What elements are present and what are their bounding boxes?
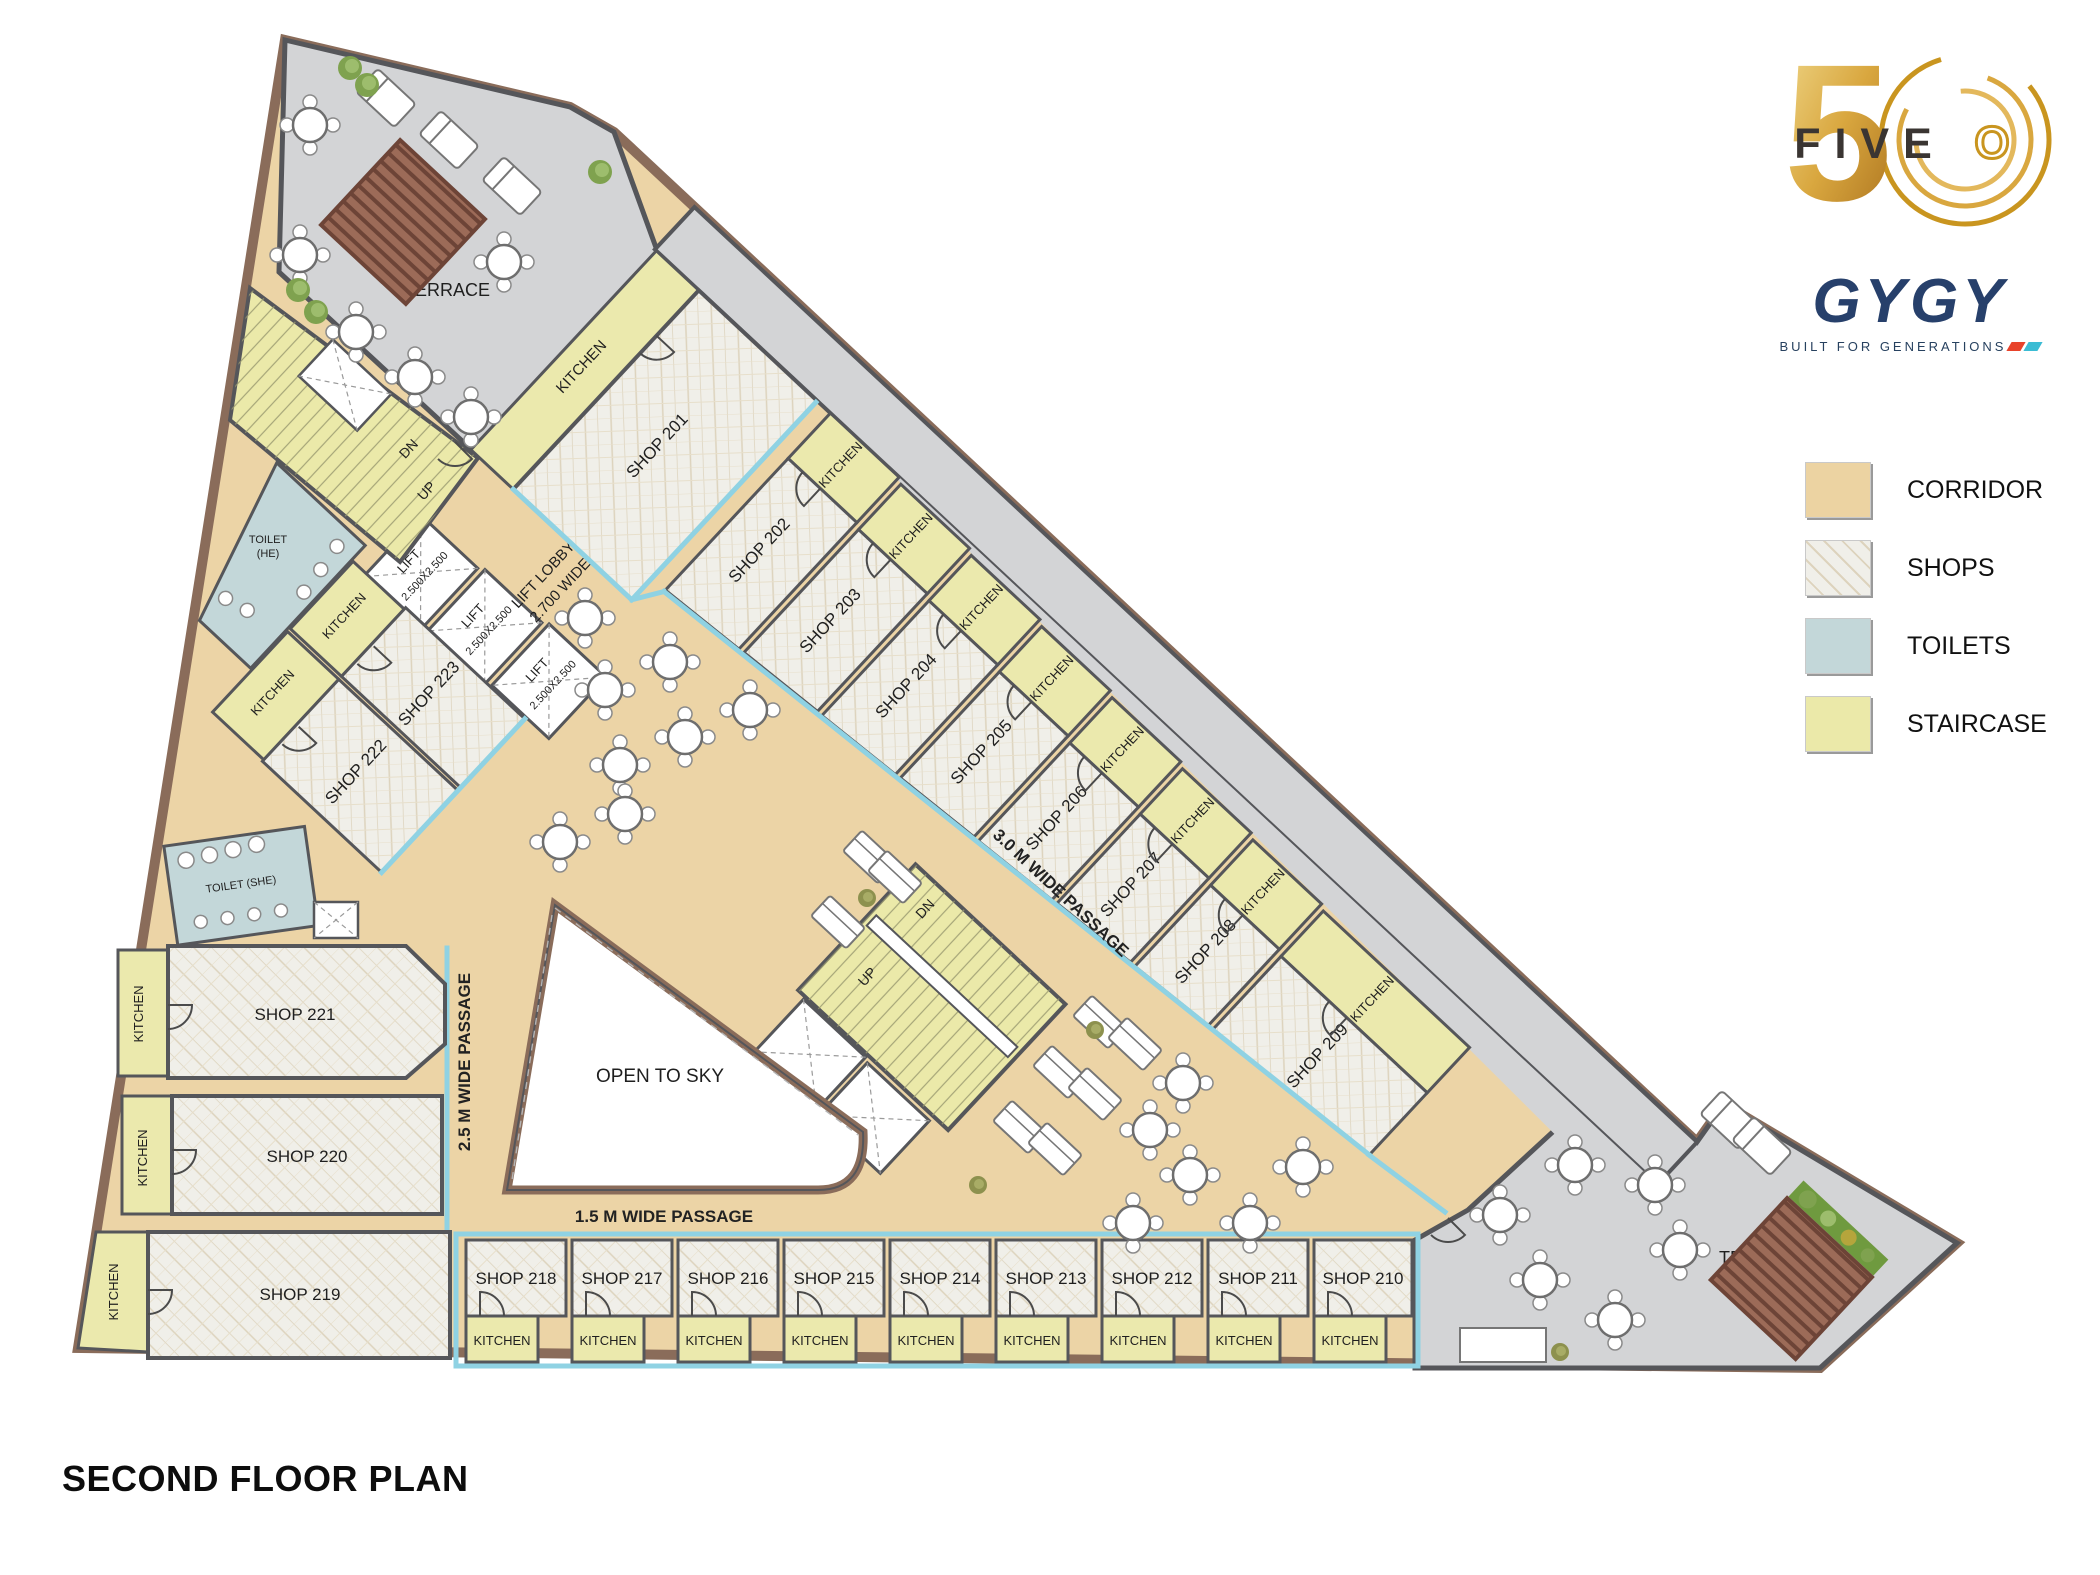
kitchen-213-label: KITCHEN	[1003, 1333, 1060, 1348]
gygy-logo: GYGY	[1740, 271, 2080, 333]
shop-212-label: SHOP 212	[1112, 1269, 1193, 1288]
logo-word: FIVE	[1794, 120, 1946, 168]
passage-2-5-label: 2.5 M WIDE PASSAGE	[455, 973, 474, 1151]
legend: CORRIDOR SHOPS TOILETS STAIRCASE	[1805, 462, 2047, 774]
legend-label-toilets: TOILETS	[1907, 632, 2011, 661]
kitchen-214-label: KITCHEN	[897, 1333, 954, 1348]
kitchen-216-label: KITCHEN	[685, 1333, 742, 1348]
legend-swatch-corridor	[1805, 462, 1871, 518]
kitchen-210-label: KITCHEN	[1321, 1333, 1378, 1348]
shop-219-label: SHOP 219	[260, 1285, 341, 1304]
logo-o: O	[1974, 117, 2009, 168]
legend-swatch-shops	[1805, 540, 1871, 596]
floor-plan-page: { "title": "SECOND FLOOR PLAN", "brandin…	[0, 0, 2100, 1575]
legend-swatch-staircase	[1805, 696, 1871, 752]
legend-swatch-toilets	[1805, 618, 1871, 674]
shop-213-label: SHOP 213	[1006, 1269, 1087, 1288]
shop-216-label: SHOP 216	[688, 1269, 769, 1288]
legend-label-staircase: STAIRCASE	[1907, 710, 2047, 739]
duct-shaft	[314, 902, 358, 938]
tagline-text: BUILT FOR GENERATIONS	[1780, 339, 2007, 354]
legend-label-shops: SHOPS	[1907, 554, 1995, 583]
shop-215-label: SHOP 215	[794, 1269, 875, 1288]
gygy-wordmark: GYGY	[1812, 267, 2007, 336]
gygy-tagline: BUILT FOR GENERATIONS	[1740, 339, 2080, 354]
shop-217-label: SHOP 217	[582, 1269, 663, 1288]
kitchen-211-label: KITCHEN	[1215, 1333, 1272, 1348]
kitchen-218-label: KITCHEN	[473, 1333, 530, 1348]
legend-row-staircase: STAIRCASE	[1805, 696, 2047, 752]
tagline-marks-icon	[2006, 339, 2040, 354]
branding-block: 5 FIVE O GYGY BUILT FOR GENERATIONS	[1740, 35, 2080, 354]
toilet-he-label-2: (HE)	[257, 548, 280, 560]
kitchen-217-label: KITCHEN	[579, 1333, 636, 1348]
toilet-she: TOILET (SHE)	[164, 826, 319, 945]
fiveo-logo: 5 FIVE O	[1760, 35, 2060, 260]
shop-214-label: SHOP 214	[900, 1269, 981, 1288]
shop-210-label: SHOP 210	[1323, 1269, 1404, 1288]
legend-label-corridor: CORRIDOR	[1907, 476, 2043, 505]
page-title: SECOND FLOOR PLAN	[62, 1458, 469, 1500]
shop-211-label: SHOP 211	[1218, 1269, 1298, 1288]
kitchen-219-label: KITCHEN	[106, 1263, 121, 1320]
legend-row-shops: SHOPS	[1805, 540, 2047, 596]
shop-218-label: SHOP 218	[476, 1269, 557, 1288]
legend-row-toilets: TOILETS	[1805, 618, 2047, 674]
kitchen-221-label: KITCHEN	[131, 985, 146, 1042]
shop-220-label: SHOP 220	[267, 1147, 348, 1166]
room-shop-220: KITCHEN SHOP 220	[122, 1096, 442, 1214]
shop-221-label: SHOP 221	[255, 1005, 336, 1024]
room-shop-221: KITCHEN SHOP 221	[118, 946, 445, 1078]
passage-1-5-label: 1.5 M WIDE PASSAGE	[575, 1207, 753, 1226]
kitchen-215-label: KITCHEN	[791, 1333, 848, 1348]
kitchen-220-label: KITCHEN	[135, 1129, 150, 1186]
kitchen-212-label: KITCHEN	[1109, 1333, 1166, 1348]
toilet-he-label-1: TOILET	[249, 534, 288, 546]
room-shop-219: KITCHEN SHOP 219	[78, 1232, 450, 1358]
open-to-sky-label: OPEN TO SKY	[596, 1066, 724, 1087]
legend-row-corridor: CORRIDOR	[1805, 462, 2047, 518]
